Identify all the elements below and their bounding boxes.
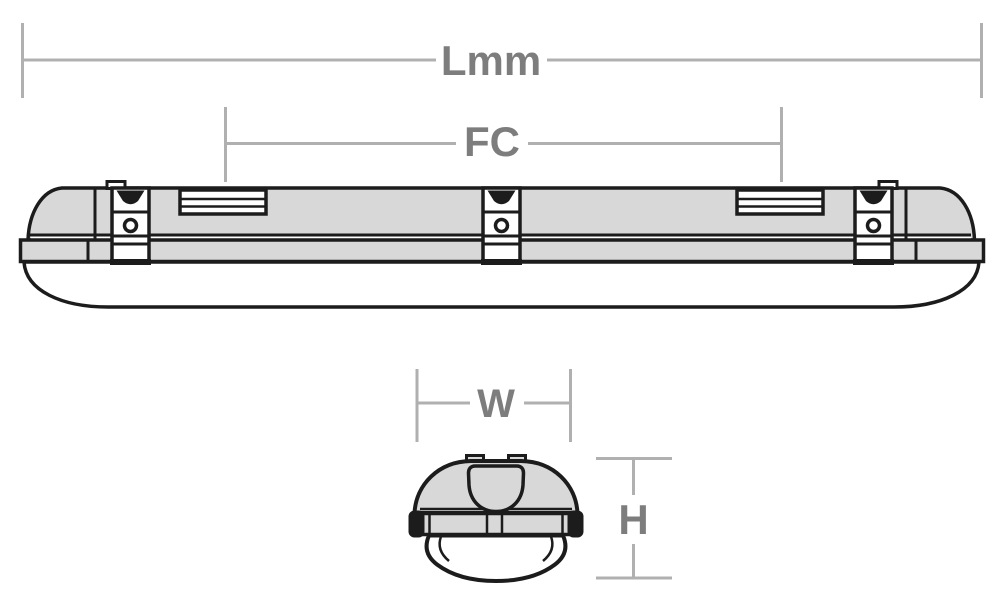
mounting-clip-left <box>107 182 151 263</box>
dim-width-label: W <box>477 382 515 426</box>
mounting-clip-right <box>853 182 897 263</box>
luminaire-dimension-diagram: Lmm FC <box>0 0 1000 602</box>
vent-slot-left <box>180 190 266 214</box>
end-seal-clip-left <box>409 511 425 538</box>
dim-fc-label: FC <box>464 118 520 165</box>
end-reflector <box>469 466 524 512</box>
vent-slot-frame <box>180 190 266 214</box>
diffuser <box>24 262 979 307</box>
clip-screw-hole <box>125 220 137 232</box>
clip-screw-hole <box>868 220 880 232</box>
end-view <box>409 456 584 582</box>
side-view <box>21 182 984 308</box>
vent-slot-frame <box>737 190 823 214</box>
vent-slot-right <box>737 190 823 214</box>
dim-height-label: H <box>618 496 648 543</box>
dim-length-label: Lmm <box>441 37 541 84</box>
mounting-clip-centre <box>481 188 522 262</box>
end-flange-band <box>416 514 576 535</box>
end-seal-clip-right <box>568 511 584 538</box>
diagram-canvas: Lmm FC <box>0 0 1000 602</box>
clip-screw-hole <box>496 220 508 232</box>
